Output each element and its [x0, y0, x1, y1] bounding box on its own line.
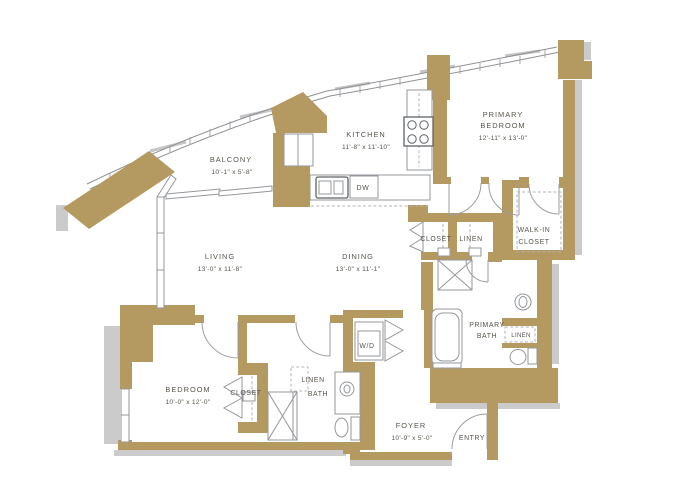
- wall-entry-jamb: [487, 403, 498, 460]
- bedroom-label: BEDROOM: [165, 385, 210, 394]
- foyer-label: FOYER: [396, 421, 426, 430]
- door-arc-bath: [296, 322, 330, 356]
- wall-foyer-west: [360, 372, 375, 450]
- wall-kitchen-east: [433, 100, 447, 184]
- door-arc-walkin: [529, 184, 559, 214]
- bedroom-closet-label: CLOSET: [230, 390, 261, 397]
- wall-pbath-east: [537, 260, 552, 368]
- bath-linen-label: LINEN: [301, 377, 324, 384]
- dishwasher-label: DW: [357, 185, 370, 192]
- primary-bedroom-dims: 12'-11" x 13'-0": [479, 135, 528, 142]
- washer-dryer: [355, 322, 383, 360]
- living-label: LIVING: [205, 252, 235, 261]
- wall-foyer-south: [350, 452, 452, 460]
- balcony-dims: 10'-1" x 5'-8": [211, 169, 252, 176]
- primary-toilet: [510, 350, 526, 365]
- bedroom-dims: 10'-0" x 12'-0": [165, 399, 210, 406]
- wall-column-mid: [271, 92, 327, 133]
- toilet: [335, 418, 348, 437]
- foyer-dims: 10'-9" x 5'-0": [391, 435, 432, 442]
- primary-bath-label-2: BATH: [477, 333, 497, 340]
- door-arc-bedroom: [202, 322, 238, 358]
- bifold-laundry: [385, 320, 403, 361]
- primary-bath-label-1: PRIMARY: [469, 322, 504, 329]
- laundry-label: W/D: [359, 343, 374, 350]
- sliding-door-panel: [219, 186, 272, 196]
- floor-plan-drawing: BALCONY 10'-1" x 5'-8" KITCHEN 11'-8" x …: [0, 0, 699, 491]
- balcony-label: BALCONY: [210, 155, 252, 164]
- entry-label: ENTRY: [459, 435, 485, 442]
- wall-laundry-north: [343, 310, 403, 318]
- walkin-label-2: CLOSET: [518, 239, 549, 246]
- bathtub: [432, 309, 462, 365]
- bifold-bedroom-closet: [224, 377, 242, 418]
- kitchen-dims: 11'-8" x 11'-10": [342, 144, 390, 151]
- wall-block-se: [430, 368, 558, 403]
- sliding-door-panel: [166, 189, 220, 199]
- wall-south: [118, 442, 344, 450]
- door-arc-hall-a: [449, 183, 481, 215]
- dining-dims: 13'-0" x 11'-1": [336, 266, 381, 273]
- window-mullion-ticks: [110, 50, 545, 181]
- bath-label: BATH: [308, 391, 328, 398]
- living-dims: 13'-0" x 11'-8": [198, 266, 243, 273]
- wall-hall-closets-north: [423, 213, 493, 222]
- hall-closet-label: CLOSET: [420, 236, 451, 243]
- hall-linen-label: LINEN: [459, 236, 482, 243]
- primary-bedroom-label-2: BEDROOM: [480, 121, 525, 130]
- primary-bedroom-label-1: PRIMARY: [483, 110, 524, 119]
- primary-linen-label: LINEN: [511, 332, 530, 339]
- walkin-label-1: WALK-IN: [518, 227, 551, 234]
- wall-east: [563, 80, 575, 260]
- door-arc-entry: [452, 414, 487, 449]
- wall-pbath-west: [421, 262, 433, 310]
- floor-plan-page: BALCONY 10'-1" x 5'-8" KITCHEN 11'-8" x …: [0, 0, 699, 491]
- dining-label: DINING: [342, 252, 374, 261]
- living-window: [157, 197, 164, 308]
- kitchen-label: KITCHEN: [346, 130, 385, 139]
